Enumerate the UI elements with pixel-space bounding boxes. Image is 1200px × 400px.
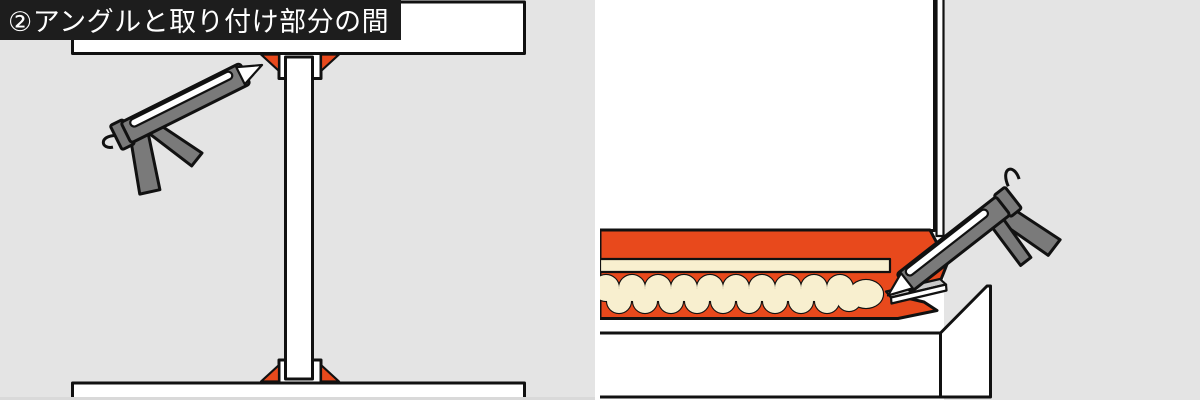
- step-label: ②アングルと取り付け部分の間: [0, 0, 401, 40]
- sealant-groove-stripe: [600, 259, 890, 272]
- caulking-instruction-illustration: ②アングルと取り付け部分の間: [0, 0, 1200, 400]
- right-panel-perspective-closeup: [600, 0, 1200, 400]
- cross-section-drawing: [0, 0, 600, 400]
- wall-board: [600, 0, 935, 231]
- left-panel-cross-section: [0, 0, 600, 400]
- wall-board-edge-strip: [937, 0, 944, 236]
- sealant-bead-row: [600, 275, 883, 313]
- perspective-drawing: [600, 0, 1200, 400]
- vertical-angle-post: [286, 57, 313, 379]
- step-label-text: ②アングルと取り付け部分の間: [8, 0, 389, 39]
